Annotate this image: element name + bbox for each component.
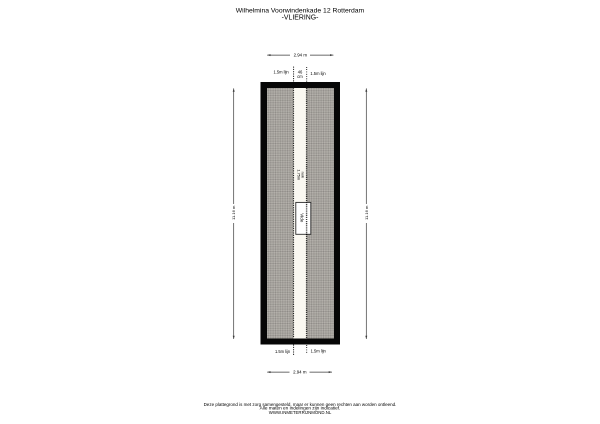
svg-text:Wilhelmina Voorwindenkade 12 R: Wilhelmina Voorwindenkade 12 Rotterdam — [236, 8, 365, 15]
svg-text:11.16 m: 11.16 m — [364, 205, 369, 220]
svg-text:1.5m lijn: 1.5m lijn — [273, 70, 289, 75]
svg-text:-VLIERING-: -VLIERING- — [282, 15, 319, 22]
svg-text:cm: cm — [297, 74, 303, 79]
svg-text:1.5m lijn: 1.5m lijn — [310, 71, 326, 76]
svg-text:11.16 m: 11.16 m — [231, 205, 236, 220]
svg-text:2.94 m: 2.94 m — [294, 53, 308, 58]
svg-text:Vide: Vide — [300, 213, 305, 223]
svg-text:WWW.INMETERRIJNMOND.NL: WWW.INMETERRIJNMOND.NL — [269, 410, 332, 415]
svg-text:1.5m lijn: 1.5m lijn — [275, 349, 291, 354]
svg-text:2.94 m: 2.94 m — [293, 370, 307, 375]
svg-text:1.5m lijn: 1.5m lijn — [311, 348, 327, 353]
